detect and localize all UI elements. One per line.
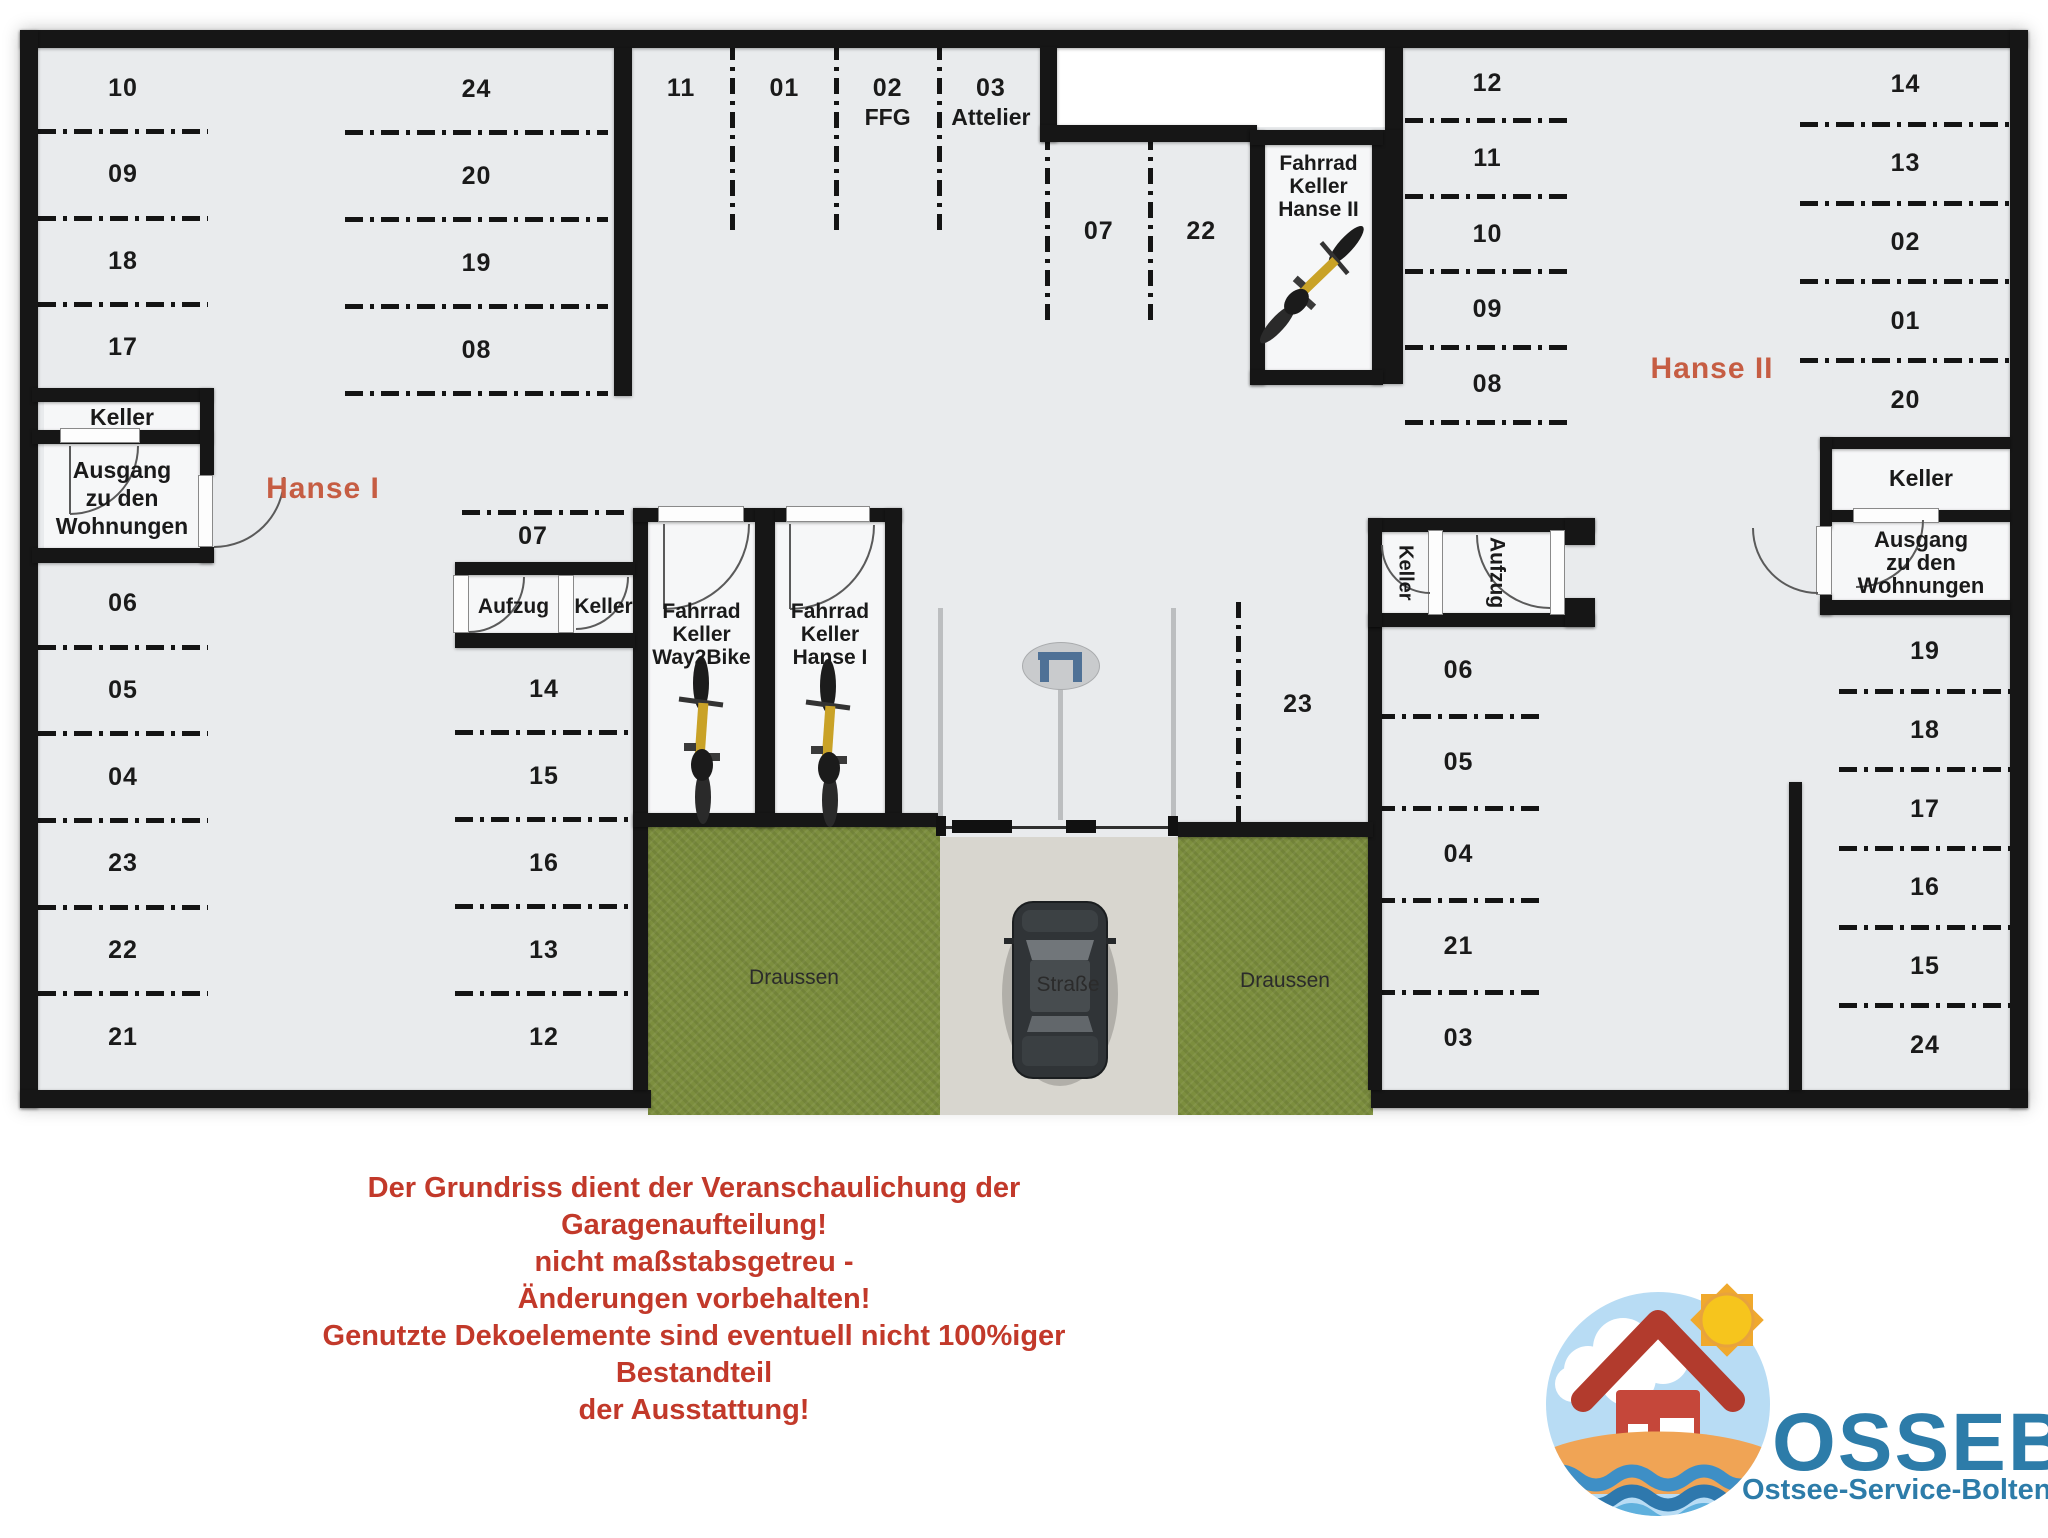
garage-gate xyxy=(1066,820,1096,833)
parking-zone-hanse1-col2-bottom: 1415161312 xyxy=(455,648,633,1078)
room-label-fahrrad-hanse1: Fahrrad Keller Hanse I xyxy=(778,600,882,669)
gate-barrier-icon xyxy=(1040,660,1049,682)
parking-spot-number: 22 xyxy=(108,936,138,965)
room-label-line: Hanse II xyxy=(1265,198,1372,221)
parking-spot-number: 03 xyxy=(1444,1024,1474,1053)
wall-segment xyxy=(20,30,2028,48)
parking-spot-number: 11 xyxy=(1473,144,1501,173)
parking-spot-number: 24 xyxy=(1910,1031,1940,1060)
parking-spot-number: 01 xyxy=(769,74,799,103)
door-frame xyxy=(1853,508,1939,523)
room-label-line: Keller xyxy=(1832,464,2010,492)
disclaimer-line: nicht maßstabsgetreu - xyxy=(274,1244,1114,1281)
parking-spot: 18 xyxy=(38,221,208,302)
wall-segment xyxy=(1250,130,1383,145)
wall-segment xyxy=(755,508,775,827)
parking-spot: 06 xyxy=(38,563,208,645)
parking-spot: 11 xyxy=(632,48,730,230)
room-label-line: Ausgang xyxy=(1832,528,2010,551)
wall-segment xyxy=(200,388,214,475)
room-label-line: zu den xyxy=(1832,551,2010,574)
spot-divider xyxy=(1236,600,1241,822)
room-label-line: Way2Bike xyxy=(648,646,755,669)
wall-segment xyxy=(1178,822,1373,837)
parking-spot-number: 07 xyxy=(1084,217,1114,246)
room-label-keller-mid-right: Keller xyxy=(1382,532,1428,613)
parking-spot: 24 xyxy=(345,48,608,130)
room-label-line: Keller xyxy=(1394,545,1417,601)
garage-gate xyxy=(952,820,1012,833)
wall-segment xyxy=(1789,782,1802,1090)
parking-spot: 02FFG xyxy=(839,48,937,230)
parking-spot: 20 xyxy=(345,135,608,217)
parking-spot-number: 11 xyxy=(667,74,695,103)
parking-spot: 09 xyxy=(38,134,208,215)
parking-spot-number: 19 xyxy=(462,249,492,278)
parking-spot-number: 14 xyxy=(529,675,559,704)
door-frame xyxy=(1428,530,1443,615)
disclaimer-line: Der Grundriss dient der Veranschaulichun… xyxy=(274,1170,1114,1244)
parking-zone-top-middle: 110102FFG03Attelier xyxy=(632,48,1040,230)
parking-zone-hanse2-sw: 0605042103 xyxy=(1377,627,1540,1082)
parking-spot: 21 xyxy=(38,996,208,1078)
room-label-line: Keller xyxy=(778,623,882,646)
parking-spot-number: 23 xyxy=(1268,690,1328,719)
parking-spot-number: 07 xyxy=(503,522,563,551)
disclaimer-line: Genutzte Dekoelemente sind eventuell nic… xyxy=(274,1318,1114,1392)
parking-spot-number: 13 xyxy=(529,936,559,965)
building-label-hanse1: Hanse I xyxy=(223,472,423,506)
disclaimer-line: der Ausstattung! xyxy=(274,1392,1114,1429)
room-label-line: Wohnungen xyxy=(1832,574,2010,597)
parking-spot: 10 xyxy=(1405,199,1570,269)
parking-spot: 20 xyxy=(1800,363,2011,437)
parking-spot: 08 xyxy=(345,309,608,391)
parking-spot: 21 xyxy=(1377,903,1540,990)
room-label-line: Aufzug xyxy=(469,595,558,618)
room-label-line: Wohnungen xyxy=(44,512,200,540)
parking-spot-number: 13 xyxy=(1891,149,1921,178)
room-label-line: Keller xyxy=(648,623,755,646)
parking-spot: 23 xyxy=(38,823,208,905)
parking-spot-number: 10 xyxy=(1473,220,1503,249)
parking-spot-number: 09 xyxy=(108,160,138,189)
wall-segment xyxy=(633,813,940,827)
parking-spot-number: 02 xyxy=(873,74,903,103)
gate-post xyxy=(938,608,943,820)
room-label-fahrrad-way2bike: Fahrrad Keller Way2Bike xyxy=(648,600,755,669)
sun-icon xyxy=(1701,1294,1753,1346)
parking-spot: 05 xyxy=(1377,719,1540,806)
parking-spot-number: 14 xyxy=(1891,70,1921,99)
parking-zone-hanse1-col2-top: 24201908 xyxy=(345,48,608,396)
house-icon xyxy=(1583,1322,1733,1470)
door-frame xyxy=(1550,530,1565,615)
room-label-keller-left: Keller xyxy=(566,595,641,618)
parking-spot: 18 xyxy=(1839,694,2011,768)
parking-spot: 06 xyxy=(1377,627,1540,714)
logo-circle xyxy=(1546,1292,1770,1516)
room-label-aufzug-mid-right: Aufzug xyxy=(1443,532,1550,613)
wall-segment xyxy=(32,548,213,563)
parking-spot: 13 xyxy=(1800,127,2011,201)
room-label-line: Keller xyxy=(44,403,200,431)
sun-icon xyxy=(1690,1283,1764,1357)
parking-spot: 07 xyxy=(1050,142,1148,320)
wall-segment xyxy=(455,633,635,648)
room-label-line: Hanse I xyxy=(778,646,882,669)
wall-segment xyxy=(32,388,213,402)
parking-spot-number: 05 xyxy=(1444,748,1474,777)
parking-zone-hanse2-ne: 1413020120 xyxy=(1800,48,2011,437)
parking-spot: 14 xyxy=(1800,48,2011,122)
spot-divider xyxy=(345,391,608,396)
parking-spot: 15 xyxy=(455,735,633,817)
parking-spot-number: 02 xyxy=(1891,228,1921,257)
parking-spot: 05 xyxy=(38,650,208,732)
parking-spot-number: 03 xyxy=(976,74,1006,103)
wall-segment xyxy=(1040,125,1257,142)
parking-spot: 03Attelier xyxy=(942,48,1040,230)
parking-spot-number: 05 xyxy=(108,676,138,705)
gate-post xyxy=(1058,688,1063,820)
parking-spot-number: 21 xyxy=(1444,932,1474,961)
door-frame xyxy=(198,475,213,547)
parking-spot-number: 01 xyxy=(1891,307,1921,336)
parking-spot-number: 20 xyxy=(462,162,492,191)
room-label-line: Fahrrad xyxy=(648,600,755,623)
draussen-left-label: Draussen xyxy=(714,966,874,990)
wall-segment xyxy=(1250,130,1265,385)
parking-spot-number: 16 xyxy=(1910,873,1940,902)
gate-barrier-icon xyxy=(1022,642,1100,690)
door-frame xyxy=(786,506,870,522)
parking-spot-number: 21 xyxy=(108,1023,138,1052)
room-label-line: Ausgang xyxy=(44,456,200,484)
parking-spot-number: 08 xyxy=(1473,370,1503,399)
room-label-ausgang-west: Ausgang zu den Wohnungen xyxy=(44,456,200,540)
parking-zone-hanse2-nw: 1211100908 xyxy=(1405,48,1570,425)
wall-segment xyxy=(1820,437,2010,449)
parking-spot-number: 04 xyxy=(1444,840,1474,869)
parking-spot: 19 xyxy=(345,222,608,304)
parking-spot-sublabel: Attelier xyxy=(951,104,1030,131)
parking-spot-number: 16 xyxy=(529,849,559,878)
room-label-line: Keller xyxy=(566,595,641,618)
parking-spot: 12 xyxy=(1405,48,1570,118)
wall-segment xyxy=(885,508,902,827)
parking-zone-hanse1-west-top: 10091817 xyxy=(38,48,208,388)
parking-spot: 04 xyxy=(38,736,208,818)
parking-spot: 17 xyxy=(38,307,208,388)
garage-gate xyxy=(1168,816,1178,836)
parking-zone-hanse1-west-bottom: 060504232221 xyxy=(38,563,208,1078)
parking-spot: 13 xyxy=(455,909,633,991)
parking-spot-number: 18 xyxy=(1910,716,1940,745)
parking-spot: 14 xyxy=(455,648,633,730)
wall-segment xyxy=(1250,370,1383,385)
parking-spot-number: 17 xyxy=(1910,795,1940,824)
gate-barrier-icon xyxy=(1073,660,1082,682)
parking-spot: 16 xyxy=(1839,851,2011,925)
parking-spot-number: 20 xyxy=(1891,386,1921,415)
parking-spot: 01 xyxy=(735,48,833,230)
room-label-keller-west: Keller xyxy=(44,403,200,431)
spot-divider xyxy=(1405,420,1570,425)
strasse-label: Straße xyxy=(998,973,1138,997)
wall-segment xyxy=(1820,437,1832,528)
parking-spot-number: 19 xyxy=(1910,637,1940,666)
parking-spot: 08 xyxy=(1405,350,1570,420)
parking-spot: 09 xyxy=(1405,274,1570,344)
building-label-hanse2: Hanse II xyxy=(1612,352,1812,386)
parking-spot-number: 24 xyxy=(462,75,492,104)
disclaimer-text: Der Grundriss dient der Veranschaulichun… xyxy=(274,1170,1114,1429)
disclaimer-line: Änderungen vorbehalten! xyxy=(274,1281,1114,1318)
parking-spot: 12 xyxy=(455,996,633,1078)
room-label-line: Aufzug xyxy=(1485,537,1509,608)
parking-spot: 01 xyxy=(1800,284,2011,358)
parking-spot-number: 04 xyxy=(108,763,138,792)
wall-segment xyxy=(1368,627,1382,1090)
parking-spot: 19 xyxy=(1839,615,2011,689)
wall-segment xyxy=(1368,613,1595,627)
parking-spot: 16 xyxy=(455,822,633,904)
wall-segment xyxy=(1372,130,1403,384)
wall-segment xyxy=(1385,48,1403,130)
parking-spot-number: 12 xyxy=(529,1023,559,1052)
logo-subtitle-text: Ostsee-Service-Boltenhagen GmbH xyxy=(1742,1474,2048,1507)
parking-zone-mid-07-22: 0722 xyxy=(1045,142,1250,320)
door-frame xyxy=(658,506,744,522)
wall-segment xyxy=(2010,30,2028,1108)
room-label-ausgang-east: Ausgang zu den Wohnungen xyxy=(1832,528,2010,597)
parking-spot-number: 12 xyxy=(1473,69,1503,98)
draussen-right-label: Draussen xyxy=(1205,969,1365,993)
wall-segment xyxy=(20,30,38,1108)
parking-spot: 15 xyxy=(1839,930,2011,1004)
room-label-line: zu den xyxy=(44,484,200,512)
parking-spot-number: 17 xyxy=(108,333,138,362)
wall-segment xyxy=(20,1090,651,1108)
parking-spot: 02 xyxy=(1800,206,2011,280)
gate-barrier-icon xyxy=(1038,652,1082,660)
wall-segment xyxy=(1371,1090,2028,1108)
parking-spot: 11 xyxy=(1405,123,1570,193)
parking-spot-number: 06 xyxy=(108,589,138,618)
parking-spot: 03 xyxy=(1377,995,1540,1082)
wall-segment xyxy=(1565,598,1595,627)
parking-spot-number: 15 xyxy=(529,762,559,791)
gate-post xyxy=(1171,608,1176,820)
parking-spot-number: 22 xyxy=(1186,217,1216,246)
parking-spot: 17 xyxy=(1839,772,2011,846)
parking-spot: 04 xyxy=(1377,811,1540,898)
room-label-line: Fahrrad xyxy=(778,600,882,623)
room-label-line: Fahrrad xyxy=(1265,152,1372,175)
parking-spot: 22 xyxy=(1153,142,1251,320)
wall-segment xyxy=(1565,518,1595,545)
wall-segment xyxy=(1820,600,2010,615)
parking-spot-number: 15 xyxy=(1910,952,1940,981)
parking-spot-sublabel: FFG xyxy=(865,104,911,131)
wall-segment xyxy=(455,562,635,575)
spot-divider xyxy=(462,510,630,515)
parking-spot-number: 09 xyxy=(1473,295,1503,324)
wall-segment xyxy=(1368,518,1382,627)
parking-zone-hanse2-se: 191817161524 xyxy=(1839,615,2011,1082)
garage-gate xyxy=(936,816,946,836)
room-label-keller-east: Keller xyxy=(1832,464,2010,492)
sun-icon xyxy=(1701,1294,1753,1346)
room-label-line: Keller xyxy=(1265,175,1372,198)
parking-spot-number: 10 xyxy=(108,74,138,103)
parking-spot: 24 xyxy=(1839,1008,2011,1082)
garage-floorplan-page: 10091817 060504232221 24201908 110102FFG… xyxy=(0,0,2048,1538)
room-label-fahrrad-hanse2: Fahrrad Keller Hanse II xyxy=(1265,152,1372,221)
parking-spot-number: 06 xyxy=(1444,656,1474,685)
door-frame xyxy=(453,575,469,633)
waves-icon xyxy=(1542,1471,1758,1523)
parking-spot-number: 08 xyxy=(462,336,492,365)
parking-spot: 22 xyxy=(38,910,208,992)
parking-spot: 10 xyxy=(38,48,208,129)
door-frame xyxy=(1816,526,1832,595)
outside-notch xyxy=(1057,47,1390,127)
room-label-aufzug-left: Aufzug xyxy=(469,595,558,618)
wall-segment xyxy=(614,48,632,396)
cloud-icon xyxy=(1555,1318,1689,1406)
parking-spot-number: 23 xyxy=(108,849,138,878)
parking-spot-number: 18 xyxy=(108,247,138,276)
